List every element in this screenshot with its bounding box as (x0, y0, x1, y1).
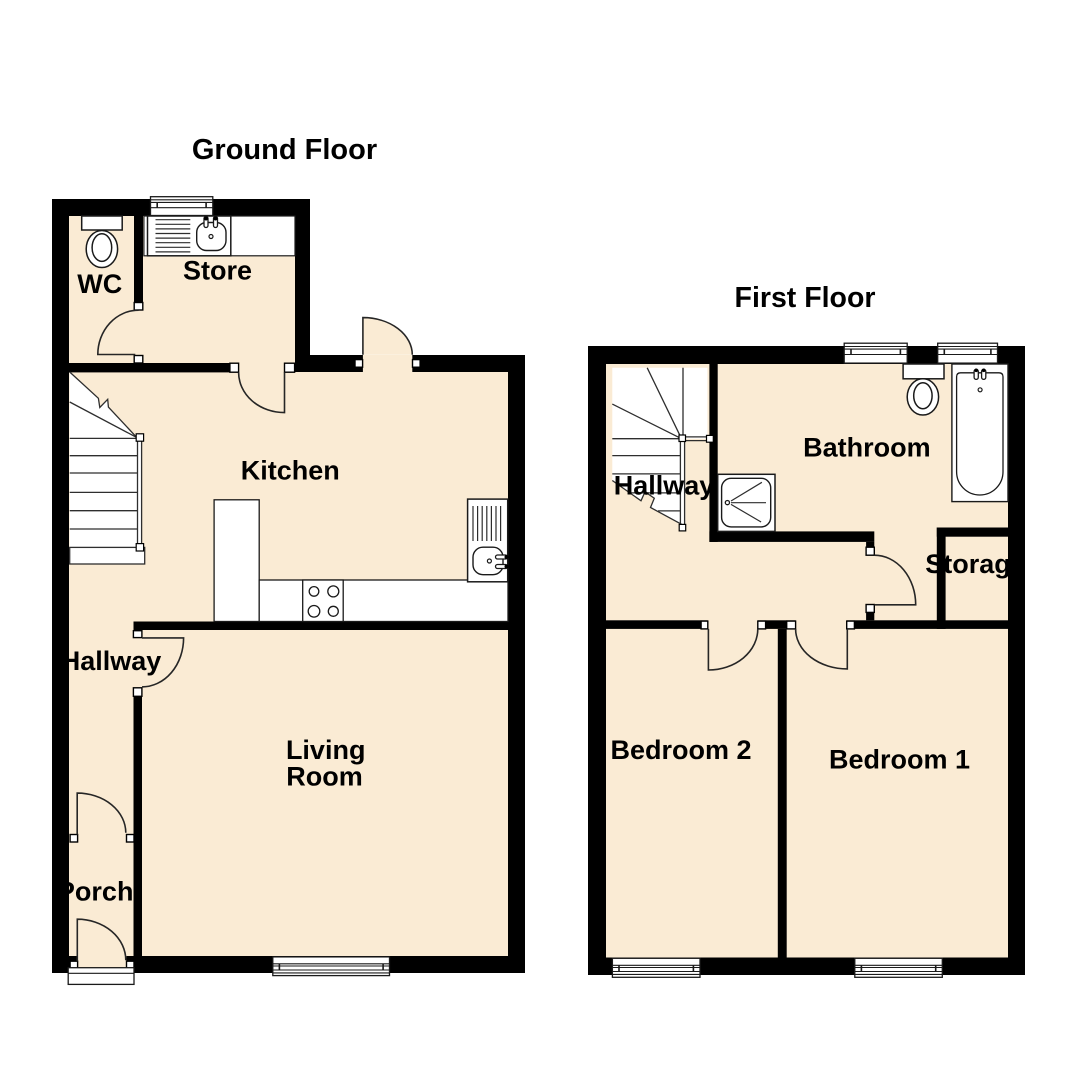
svg-text:Bedroom 1: Bedroom 1 (829, 745, 970, 775)
svg-text:Ground Floor: Ground Floor (192, 134, 377, 166)
svg-text:Bedroom 2: Bedroom 2 (610, 735, 751, 765)
svg-text:Kitchen: Kitchen (241, 456, 340, 486)
svg-text:Room: Room (286, 762, 363, 792)
svg-text:Hallway: Hallway (614, 471, 715, 501)
svg-text:Store: Store (183, 256, 252, 286)
svg-text:Living: Living (286, 735, 366, 765)
svg-text:Bathroom: Bathroom (803, 433, 931, 463)
svg-text:Porch: Porch (57, 877, 134, 907)
svg-text:First Floor: First Floor (735, 282, 876, 314)
svg-text:Hallway: Hallway (61, 646, 162, 676)
svg-text:Storage: Storage (925, 549, 1026, 579)
svg-text:WC: WC (77, 269, 122, 299)
